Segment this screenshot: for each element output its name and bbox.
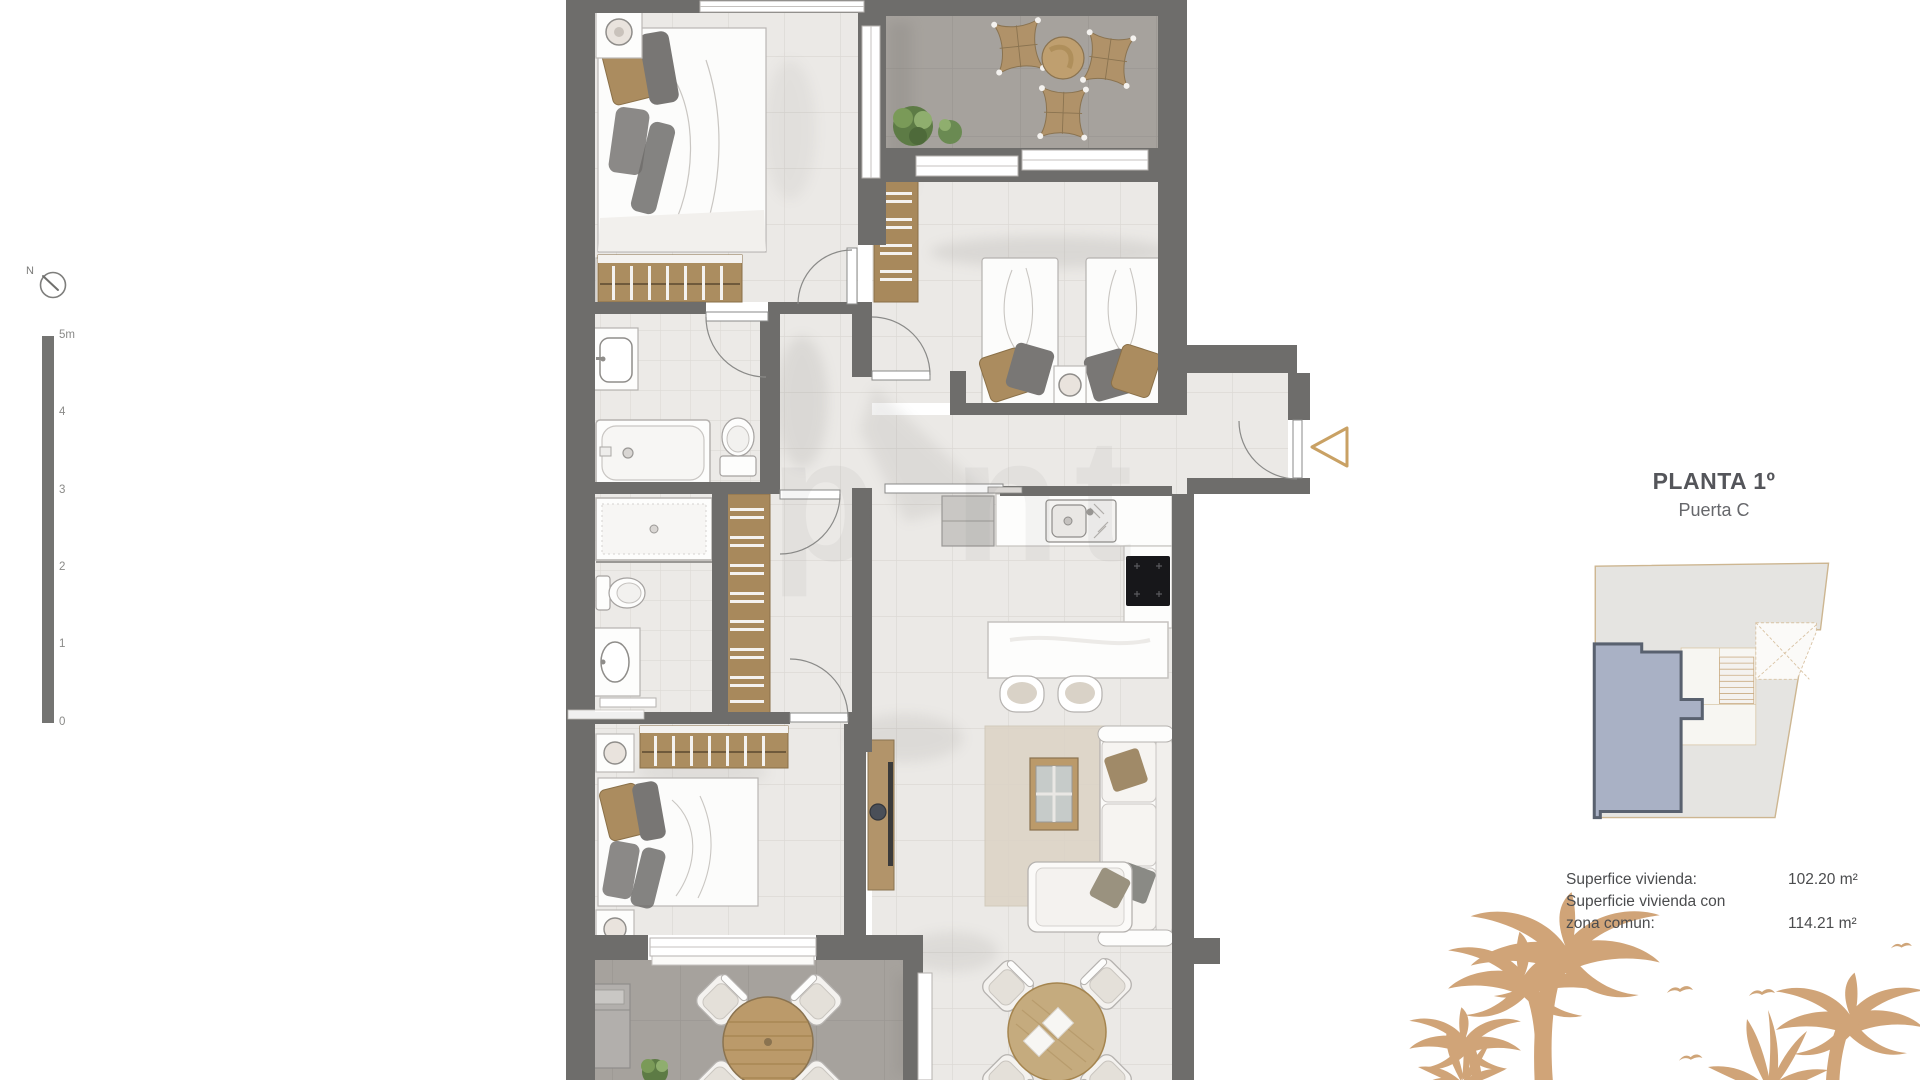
double-bed	[598, 778, 758, 910]
scale-tick-label: 4	[59, 406, 65, 418]
single-bed	[978, 258, 1058, 406]
surface-row: Superfice vivienda: 102.20 m²	[1566, 869, 1906, 891]
nightstand	[1054, 366, 1086, 404]
scale-tick-label: 5m	[59, 329, 75, 341]
nightstand	[596, 6, 642, 58]
cooktop	[1126, 556, 1170, 606]
island	[988, 622, 1168, 678]
kitchen-sink	[1046, 500, 1116, 542]
chaise	[1028, 862, 1132, 932]
double-bed	[598, 28, 766, 252]
entry-arrow-icon	[1312, 428, 1347, 466]
floor-plan-page: p nt N 5m43210 PLANTA 1º Puerta C Superf…	[0, 0, 1920, 1080]
surface-label: Superficie vivienda con	[1566, 893, 1725, 910]
surface-row: zona comun: 114.21 m²	[1566, 913, 1906, 935]
sliding-door	[885, 484, 1003, 493]
scale-bar	[42, 336, 54, 723]
bar-stool	[1000, 676, 1044, 712]
building-key-plan	[1567, 551, 1880, 854]
scale-tick-label: 3	[59, 484, 65, 496]
scale-tick-label: 0	[59, 716, 65, 728]
surface-row: Superficie vivienda con	[1566, 891, 1906, 913]
coffee-table	[1030, 758, 1078, 830]
entry-floor	[1187, 373, 1288, 494]
bar-stool	[1058, 676, 1102, 712]
wardrobe	[640, 726, 788, 768]
wardrobe	[598, 255, 742, 302]
surface-label: Superfice vivienda:	[1566, 871, 1697, 888]
compass-north-icon: N	[26, 263, 86, 307]
toilet	[596, 576, 645, 610]
surface-value: 102.20 m²	[1788, 869, 1858, 891]
outdoor-table	[723, 997, 813, 1080]
surface-value: 114.21 m²	[1788, 913, 1857, 935]
surface-info: Superfice vivienda: 102.20 m² Superficie…	[1566, 869, 1906, 935]
sliding-door	[918, 973, 932, 1080]
bedroom-1	[596, 6, 766, 310]
potted-plant	[641, 1059, 668, 1080]
scale-tick-label: 2	[59, 561, 65, 573]
vanity	[594, 628, 640, 696]
compass-label: N	[26, 265, 34, 277]
scale-tick-label: 1	[59, 638, 65, 650]
page-subtitle: Puerta C	[1564, 500, 1864, 521]
dressing-wardrobe	[724, 494, 770, 718]
nightstand	[596, 734, 634, 772]
shower	[596, 498, 712, 562]
single-bed	[1082, 258, 1162, 406]
bathtub	[596, 420, 710, 486]
toilet	[720, 418, 756, 476]
surface-label: zona comun:	[1566, 915, 1655, 932]
page-title: PLANTA 1º	[1564, 468, 1864, 495]
tv-unit	[868, 740, 894, 890]
plan-title-block: PLANTA 1º Puerta C	[1564, 468, 1864, 521]
courtyard-hatch	[1756, 623, 1817, 680]
terrace-table	[1042, 37, 1084, 79]
radiator	[600, 698, 656, 707]
